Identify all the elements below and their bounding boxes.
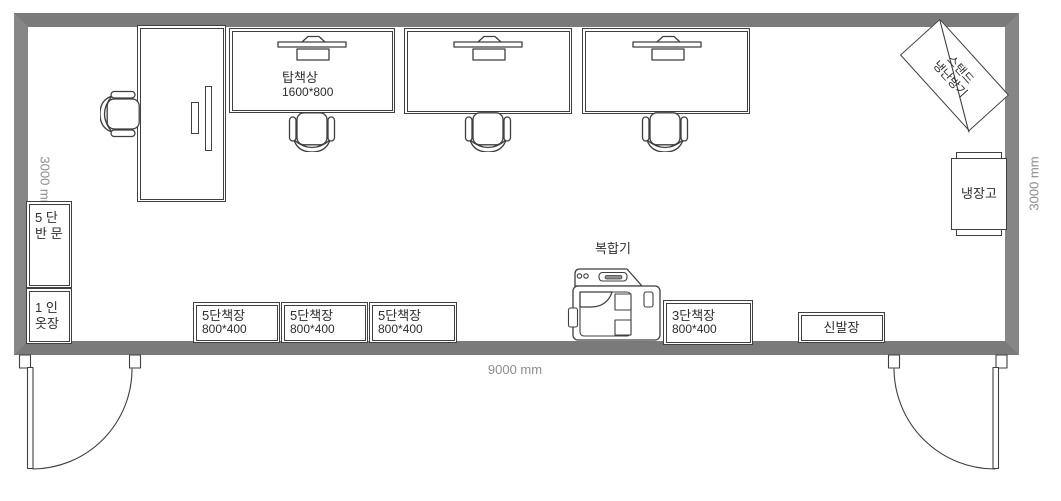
dimension-bottom: 9000 mm [475, 362, 555, 377]
shoe-cabinet-label: 신발장 [824, 320, 860, 336]
chair-icon[interactable] [288, 112, 336, 152]
keyboard-vertical-icon [191, 102, 199, 134]
monitor-icon [277, 35, 347, 62]
printer-icon[interactable] [565, 264, 665, 342]
wardrobe-label-2: 옷장 [35, 316, 68, 332]
fridge[interactable]: 냉장고 [951, 158, 1007, 230]
bookshelf-5tier-3[interactable]: 5단책장 800*400 [369, 302, 457, 343]
bookshelf-size: 800*400 [378, 323, 453, 337]
monitor-icon [453, 35, 523, 62]
shoe-cabinet[interactable]: 신발장 [798, 312, 885, 343]
bookshelf-size: 800*400 [672, 323, 749, 337]
dimension-right: 3000 mm [1027, 152, 1042, 216]
bookshelf-name: 3단책장 [672, 308, 749, 324]
desk-vertical[interactable] [137, 25, 226, 202]
desk-label: 탑책상 1600*800 [282, 70, 333, 99]
bookshelf-size: 800*400 [290, 323, 364, 337]
chair-icon[interactable] [100, 90, 140, 138]
cabinet-label-1: 5 단 [35, 210, 68, 226]
desk-name: 탑책상 [282, 70, 333, 86]
chair-icon[interactable] [464, 112, 512, 152]
bookshelf-name: 5단책장 [378, 308, 453, 324]
wardrobe-single[interactable]: 1 인 옷장 [26, 288, 72, 344]
fridge-label: 냉장고 [961, 186, 997, 202]
door-left[interactable] [20, 355, 141, 469]
monitor-vertical-icon [205, 86, 212, 151]
chair-icon[interactable] [641, 112, 689, 152]
cabinet-5tier-half-door[interactable]: 5 단 반 문 [26, 201, 72, 288]
bookshelf-name: 5단책장 [290, 308, 364, 324]
desk-size: 1600*800 [282, 86, 333, 100]
bookshelf-size: 800*400 [202, 323, 276, 337]
monitor-icon [632, 35, 702, 62]
printer-label: 복합기 [573, 241, 653, 257]
door-right[interactable] [889, 355, 1008, 469]
wardrobe-label-1: 1 인 [35, 300, 68, 316]
floor-plan: 3000 mm 3000 mm 9000 mm 탑책상 1600*800 [0, 0, 1061, 501]
bookshelf-name: 5단책장 [202, 308, 276, 324]
cabinet-label-2: 반 문 [35, 226, 68, 242]
bookshelf-5tier-1[interactable]: 5단책장 800*400 [193, 302, 280, 343]
bookshelf-3tier[interactable]: 3단책장 800*400 [663, 300, 753, 345]
bookshelf-5tier-2[interactable]: 5단책장 800*400 [281, 302, 368, 343]
